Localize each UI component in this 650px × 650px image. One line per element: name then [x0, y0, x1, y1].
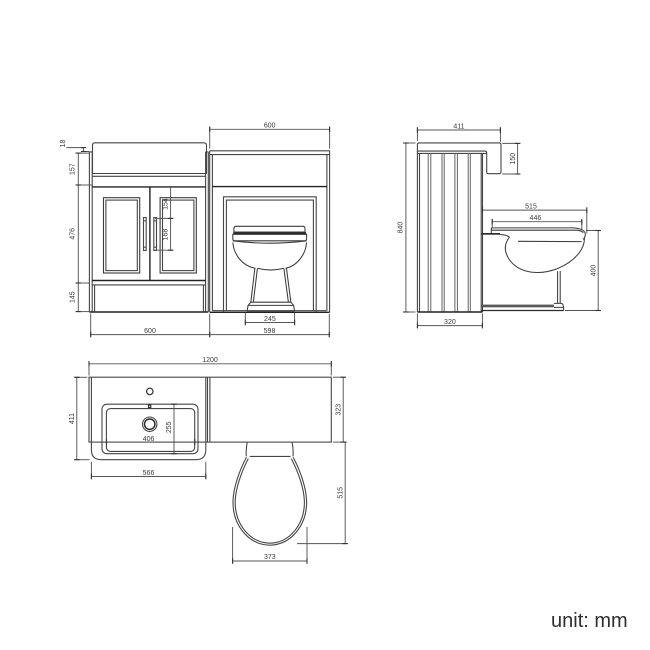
svg-text:157: 157	[70, 163, 77, 175]
svg-text:566: 566	[143, 470, 155, 477]
svg-text:373: 373	[264, 554, 276, 561]
svg-text:1200: 1200	[202, 357, 218, 364]
svg-text:145: 145	[70, 291, 77, 303]
svg-text:515: 515	[338, 487, 345, 499]
svg-text:598: 598	[264, 328, 276, 335]
svg-text:476: 476	[70, 228, 77, 240]
svg-text:245: 245	[264, 316, 276, 323]
svg-text:323: 323	[335, 404, 342, 416]
svg-text:411: 411	[453, 123, 464, 130]
svg-text:255: 255	[166, 421, 173, 433]
svg-text:840: 840	[398, 222, 405, 234]
svg-text:18: 18	[60, 140, 67, 148]
svg-text:446: 446	[530, 215, 542, 222]
svg-text:600: 600	[144, 328, 156, 335]
svg-text:320: 320	[444, 319, 456, 326]
svg-text:unit: mm: unit: mm	[551, 610, 628, 632]
svg-text:150: 150	[510, 153, 517, 165]
svg-text:411: 411	[69, 413, 76, 424]
svg-text:168: 168	[163, 229, 170, 241]
svg-text:406: 406	[143, 436, 155, 443]
svg-text:515: 515	[525, 203, 537, 210]
svg-text:154: 154	[163, 198, 170, 210]
svg-text:600: 600	[264, 123, 276, 130]
svg-text:400: 400	[591, 265, 598, 277]
